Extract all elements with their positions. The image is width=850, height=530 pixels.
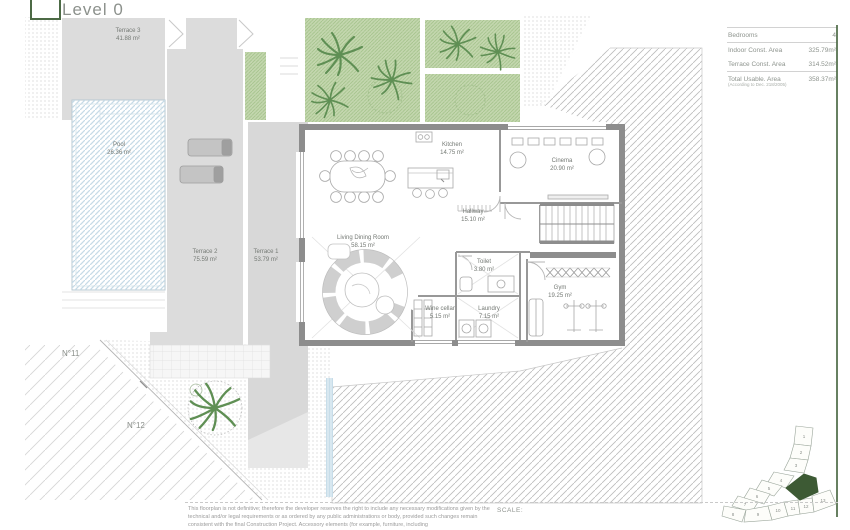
page-title: Level 0 [62,0,124,20]
info-row-bedrooms: Bedrooms 4 [727,28,837,42]
kitchen-label: Kitchen14.75 m² [422,142,482,158]
site-plan-minimap: 1 2 3 4 5 6 7 8 9 10 11 12 13 [716,416,848,528]
brand-logo [30,0,61,20]
svg-text:10: 10 [775,508,781,513]
living-label: Living Dining Room58.15 m² [326,235,400,251]
planter-strip [245,52,266,120]
toilet-label: Toilet3.80 m² [459,259,509,275]
terrace2-label: Terrace 275.59 m² [175,249,235,265]
hallway-label: Hallway15.10 m² [443,209,503,225]
plot-number-11: N°11 [62,349,79,358]
footer-disclaimer: This floorplan is not definitive; theref… [188,506,500,530]
scale-label: SCALE: [497,507,523,514]
pool-shape [72,100,165,290]
svg-text:11: 11 [791,506,796,511]
cinema-label: Cinema20.90 m² [532,158,592,174]
info-panel: Bedrooms 4 Indoor Const. Area 325.79m² T… [727,27,837,90]
info-row-terrace-area: Terrace Const. Area 314.52m² [727,57,837,71]
wine-cellar-label: Wine cellar5.15 m² [410,306,470,322]
footer-separator [185,502,838,503]
info-row-indoor-area: Indoor Const. Area 325.79m² [727,43,837,57]
svg-text:12: 12 [803,504,809,509]
gym-label: Gym19.25 m² [530,285,590,301]
pool-label: Pool26.36 m² [94,142,144,158]
floorplan-page: Terrace 341.88 m² Pool26.36 m² Terrace 2… [0,0,850,530]
laundry-label: Laundry7.15 m² [464,306,514,322]
stairs [540,203,614,245]
terrace1-label: Terrace 153.79 m² [236,249,296,265]
terrace3-label: Terrace 341.88 m² [98,28,158,44]
plot-number-12: N°12 [127,421,145,430]
